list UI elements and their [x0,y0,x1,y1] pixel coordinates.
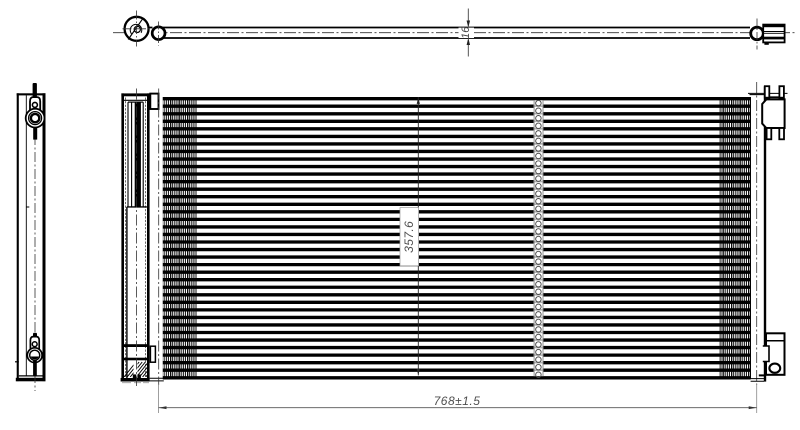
svg-text:768±1.5: 768±1.5 [434,394,481,408]
svg-text:16: 16 [460,26,472,39]
svg-text:357.6: 357.6 [402,221,416,253]
